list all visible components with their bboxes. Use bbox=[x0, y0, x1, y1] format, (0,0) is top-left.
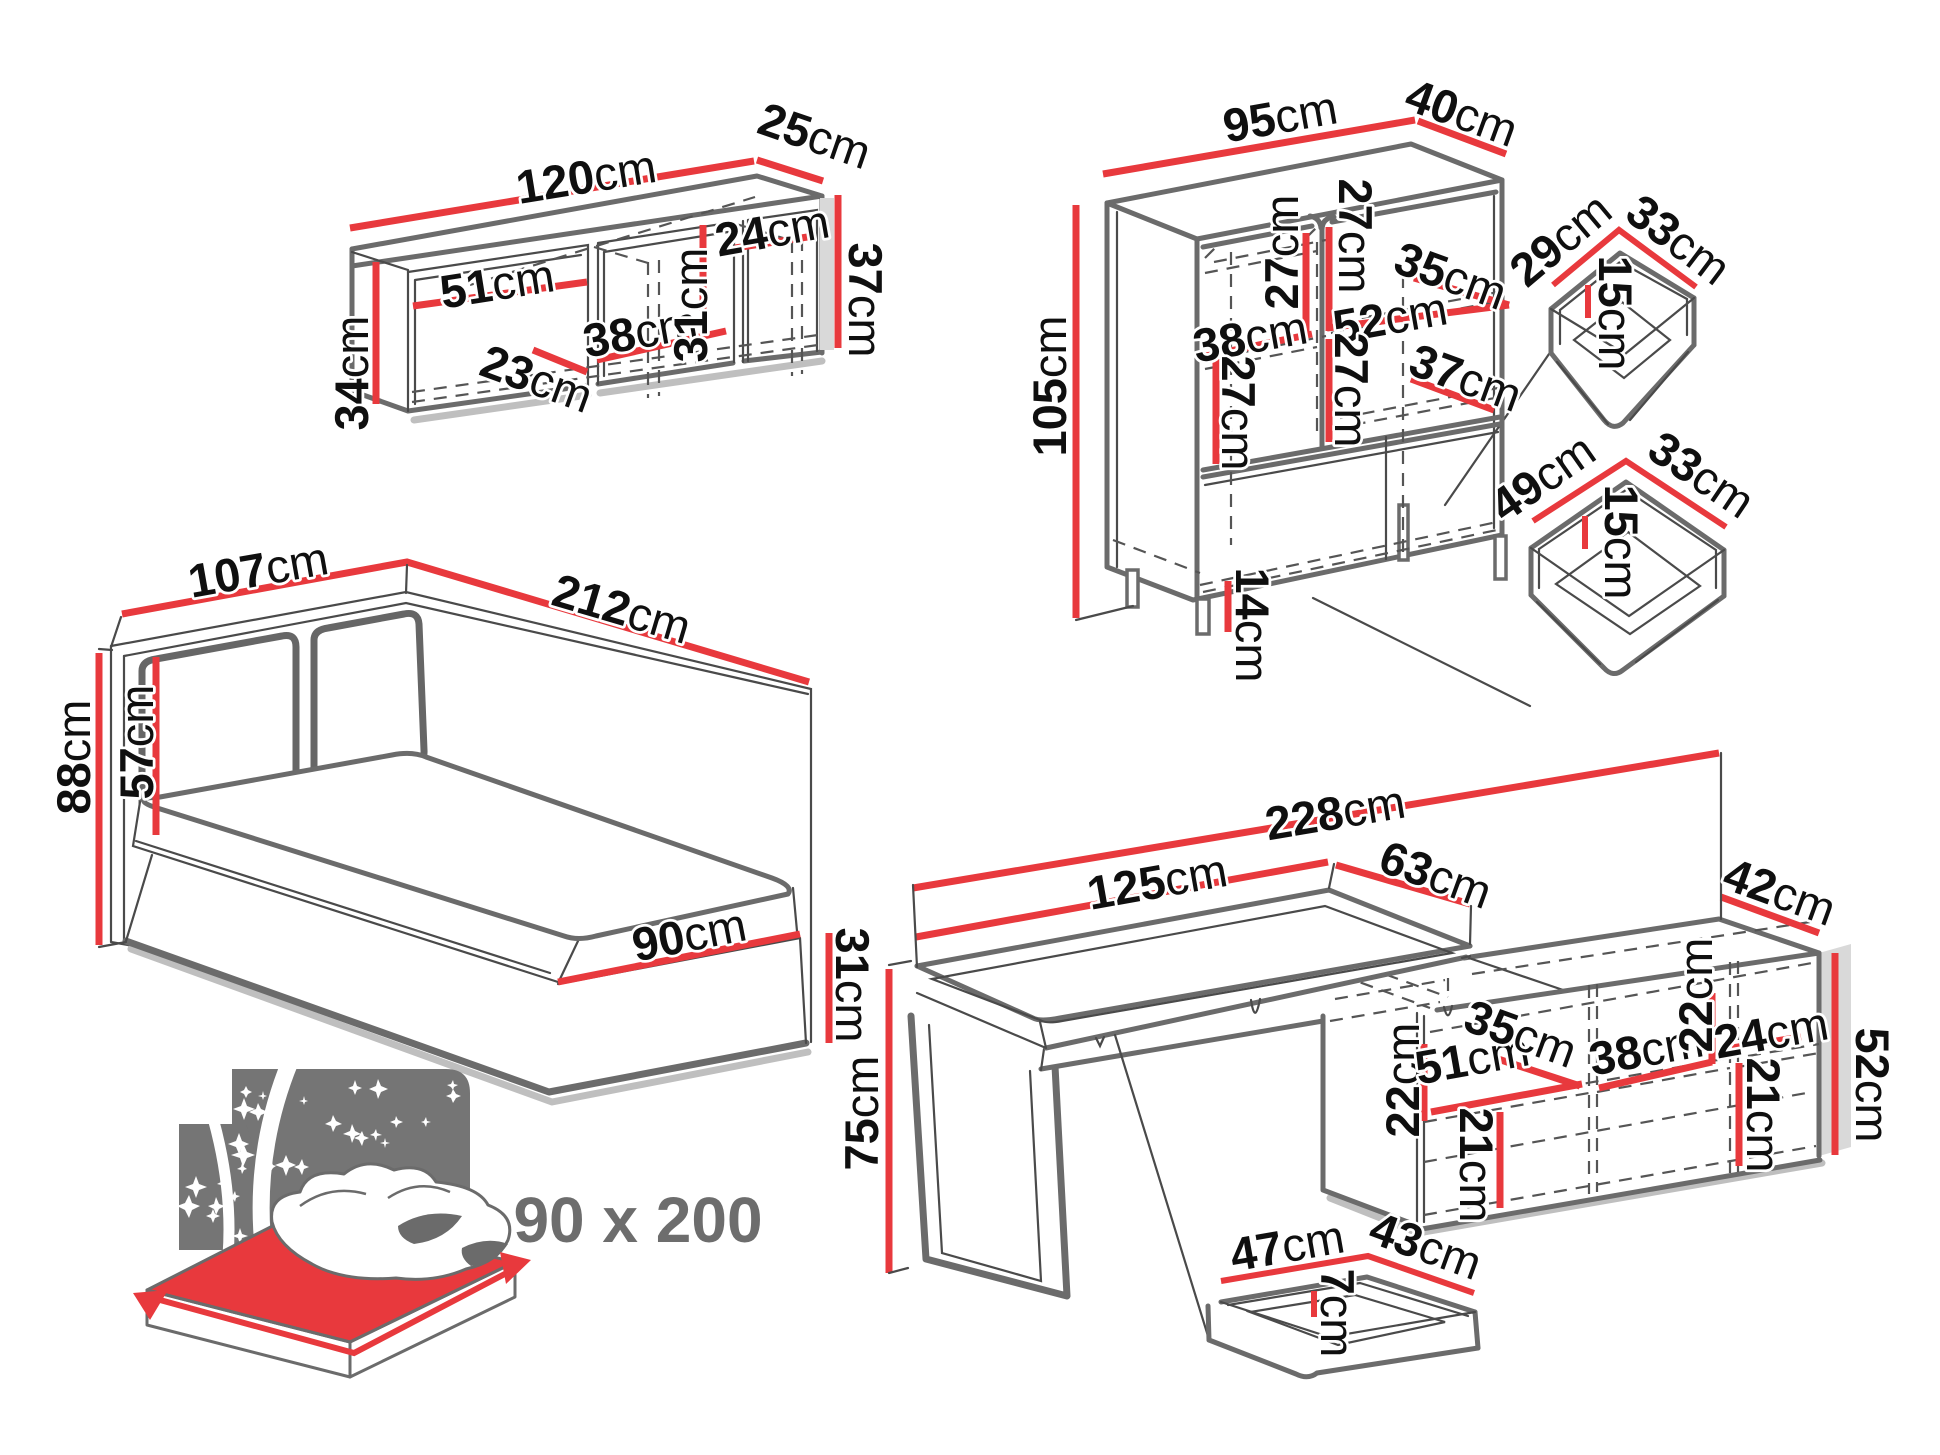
svg-text:27cm: 27cm bbox=[1325, 333, 1378, 448]
svg-text:27cm: 27cm bbox=[1255, 195, 1308, 310]
svg-text:21cm: 21cm bbox=[1450, 1108, 1503, 1223]
svg-text:15cm: 15cm bbox=[1589, 256, 1642, 371]
svg-text:37cm: 37cm bbox=[839, 243, 892, 358]
svg-text:15cm: 15cm bbox=[1595, 485, 1648, 600]
svg-text:21cm: 21cm bbox=[1737, 1058, 1790, 1173]
svg-text:14cm: 14cm bbox=[1226, 568, 1279, 683]
svg-text:27cm: 27cm bbox=[1212, 356, 1265, 471]
svg-text:7cm: 7cm bbox=[1311, 1269, 1364, 1358]
svg-text:52cm: 52cm bbox=[1846, 1028, 1899, 1143]
svg-text:27cm: 27cm bbox=[1329, 179, 1382, 294]
svg-text:57cm: 57cm bbox=[110, 685, 163, 800]
svg-text:90 x 200: 90 x 200 bbox=[513, 1184, 762, 1256]
svg-text:31cm: 31cm bbox=[826, 928, 879, 1043]
svg-text:88cm: 88cm bbox=[47, 700, 100, 815]
svg-text:105cm: 105cm bbox=[1023, 315, 1076, 456]
svg-text:75cm: 75cm bbox=[835, 1056, 888, 1171]
svg-text:34cm: 34cm bbox=[325, 316, 378, 431]
svg-text:31cm: 31cm bbox=[664, 248, 717, 363]
